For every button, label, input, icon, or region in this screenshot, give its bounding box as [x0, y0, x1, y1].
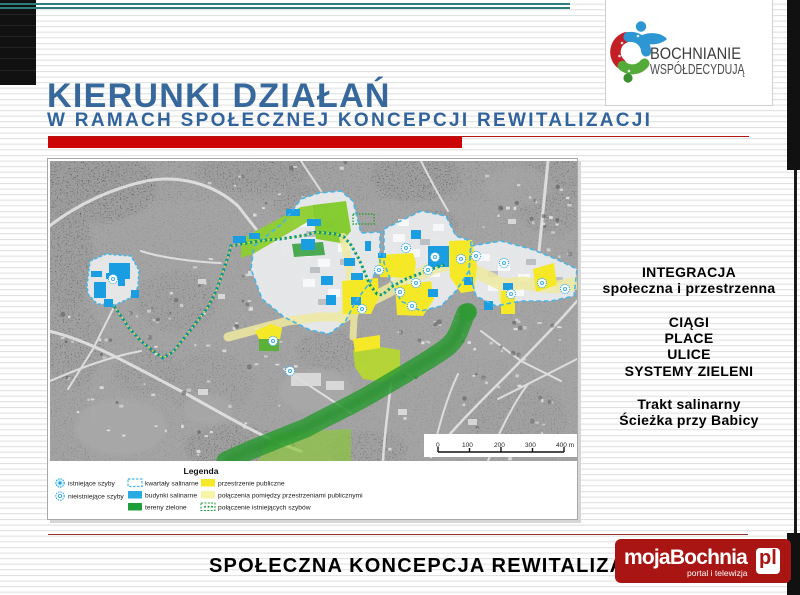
svg-text:połączenie istniejących szybów: połączenie istniejących szybów [218, 505, 311, 512]
svg-text:przestrzenie publiczne: przestrzenie publiczne [218, 481, 285, 488]
svg-text:kwartały salinarne: kwartały salinarne [145, 481, 199, 488]
svg-text:budynki salinarne: budynki salinarne [145, 493, 197, 500]
svg-text:tereny zielone: tereny zielone [145, 505, 187, 512]
svg-text:istniejące szyby: istniejące szyby [68, 481, 115, 488]
svg-text:nieistniejące szyby: nieistniejące szyby [68, 494, 124, 501]
svg-text:200: 200 [494, 442, 505, 449]
svg-text:300: 300 [525, 442, 536, 449]
svg-text:400 m: 400 m [556, 442, 574, 449]
svg-text:100: 100 [462, 442, 473, 449]
svg-text:połączenia pomiędzy przestrzen: połączenia pomiędzy przestrzeniami publi… [218, 493, 363, 500]
svg-text:0: 0 [436, 442, 440, 449]
svg-text:Legenda: Legenda [184, 466, 219, 476]
